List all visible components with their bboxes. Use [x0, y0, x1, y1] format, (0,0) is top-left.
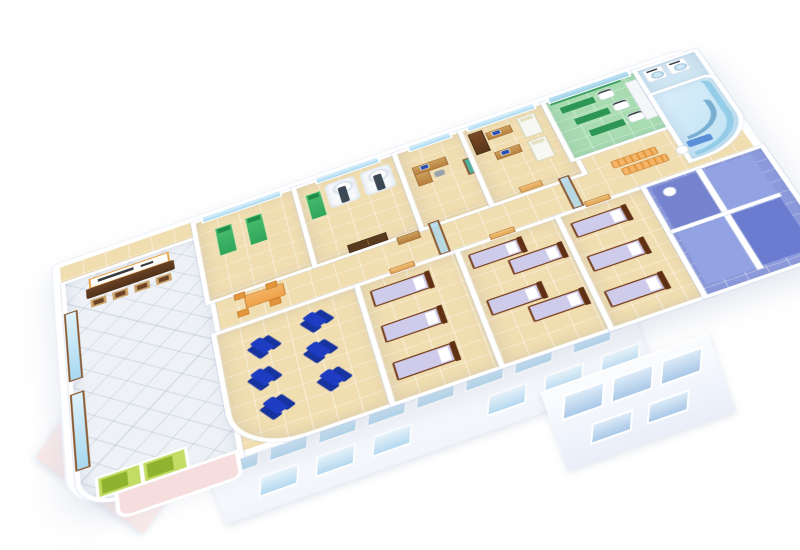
scene	[0, 0, 800, 550]
scanner-machine	[324, 175, 361, 209]
recliner-chair	[262, 396, 288, 415]
recliner-chair	[319, 368, 346, 386]
recliner-chair	[250, 368, 276, 386]
washing-machine	[642, 65, 669, 83]
dining-chair	[237, 308, 250, 318]
exam-bed-green	[304, 190, 329, 222]
ward-bed	[570, 206, 630, 239]
ward-bed	[380, 306, 443, 343]
ward-bed	[392, 343, 457, 381]
lobby-window-wall	[70, 390, 91, 472]
office-chair	[434, 169, 446, 178]
exam-couch	[526, 135, 556, 163]
ward-bed	[603, 273, 667, 308]
glass-partition-door	[558, 175, 585, 210]
recliner-chair	[305, 341, 331, 358]
exam-couch	[515, 112, 545, 139]
operating-table	[587, 118, 627, 137]
surgical-machine	[596, 88, 616, 101]
exam-bed-green	[213, 222, 239, 257]
ward-bed	[586, 238, 648, 272]
washing-machine	[665, 57, 692, 75]
glass-partition-door	[428, 220, 451, 256]
recliner-chair	[302, 311, 327, 328]
building-floor-plan	[52, 45, 800, 516]
surgical-machine	[611, 98, 631, 111]
ward-bed	[370, 272, 431, 307]
exam-bed-green	[243, 212, 269, 247]
floor-plan-render	[0, 0, 800, 550]
lobby-window-wall	[64, 310, 83, 383]
scanner-machine	[359, 163, 397, 196]
recliner-chair	[249, 337, 274, 354]
